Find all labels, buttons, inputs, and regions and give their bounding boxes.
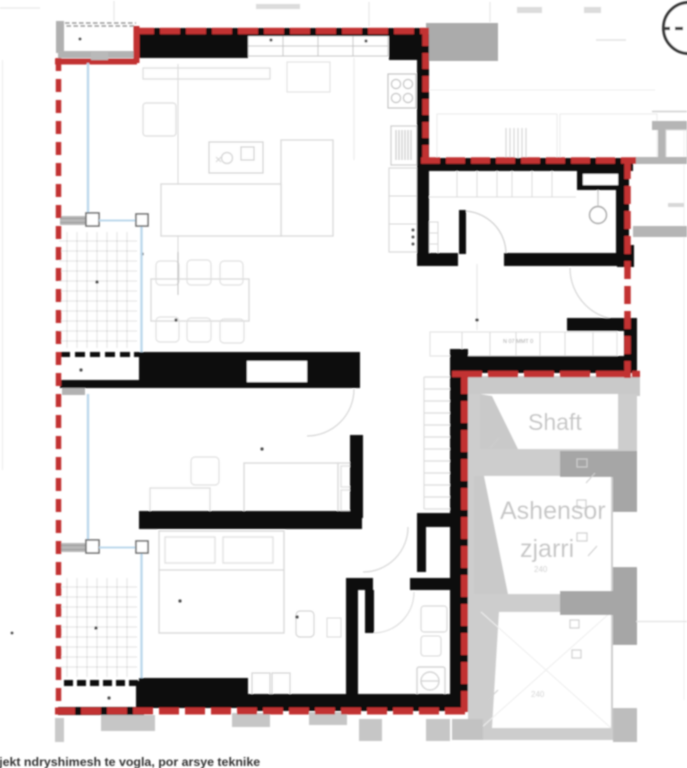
svg-text:240: 240 xyxy=(531,690,545,699)
svg-text:objekt ndryshimesh te vogla, p: objekt ndryshimesh te vogla, por arsye t… xyxy=(0,755,260,768)
svg-text:Shaft: Shaft xyxy=(528,409,582,435)
svg-text:N 07 MMT 0: N 07 MMT 0 xyxy=(503,339,533,345)
svg-text:240: 240 xyxy=(534,565,548,574)
svg-text:zjarri: zjarri xyxy=(520,535,574,563)
svg-text:Ashensor: Ashensor xyxy=(500,497,606,525)
